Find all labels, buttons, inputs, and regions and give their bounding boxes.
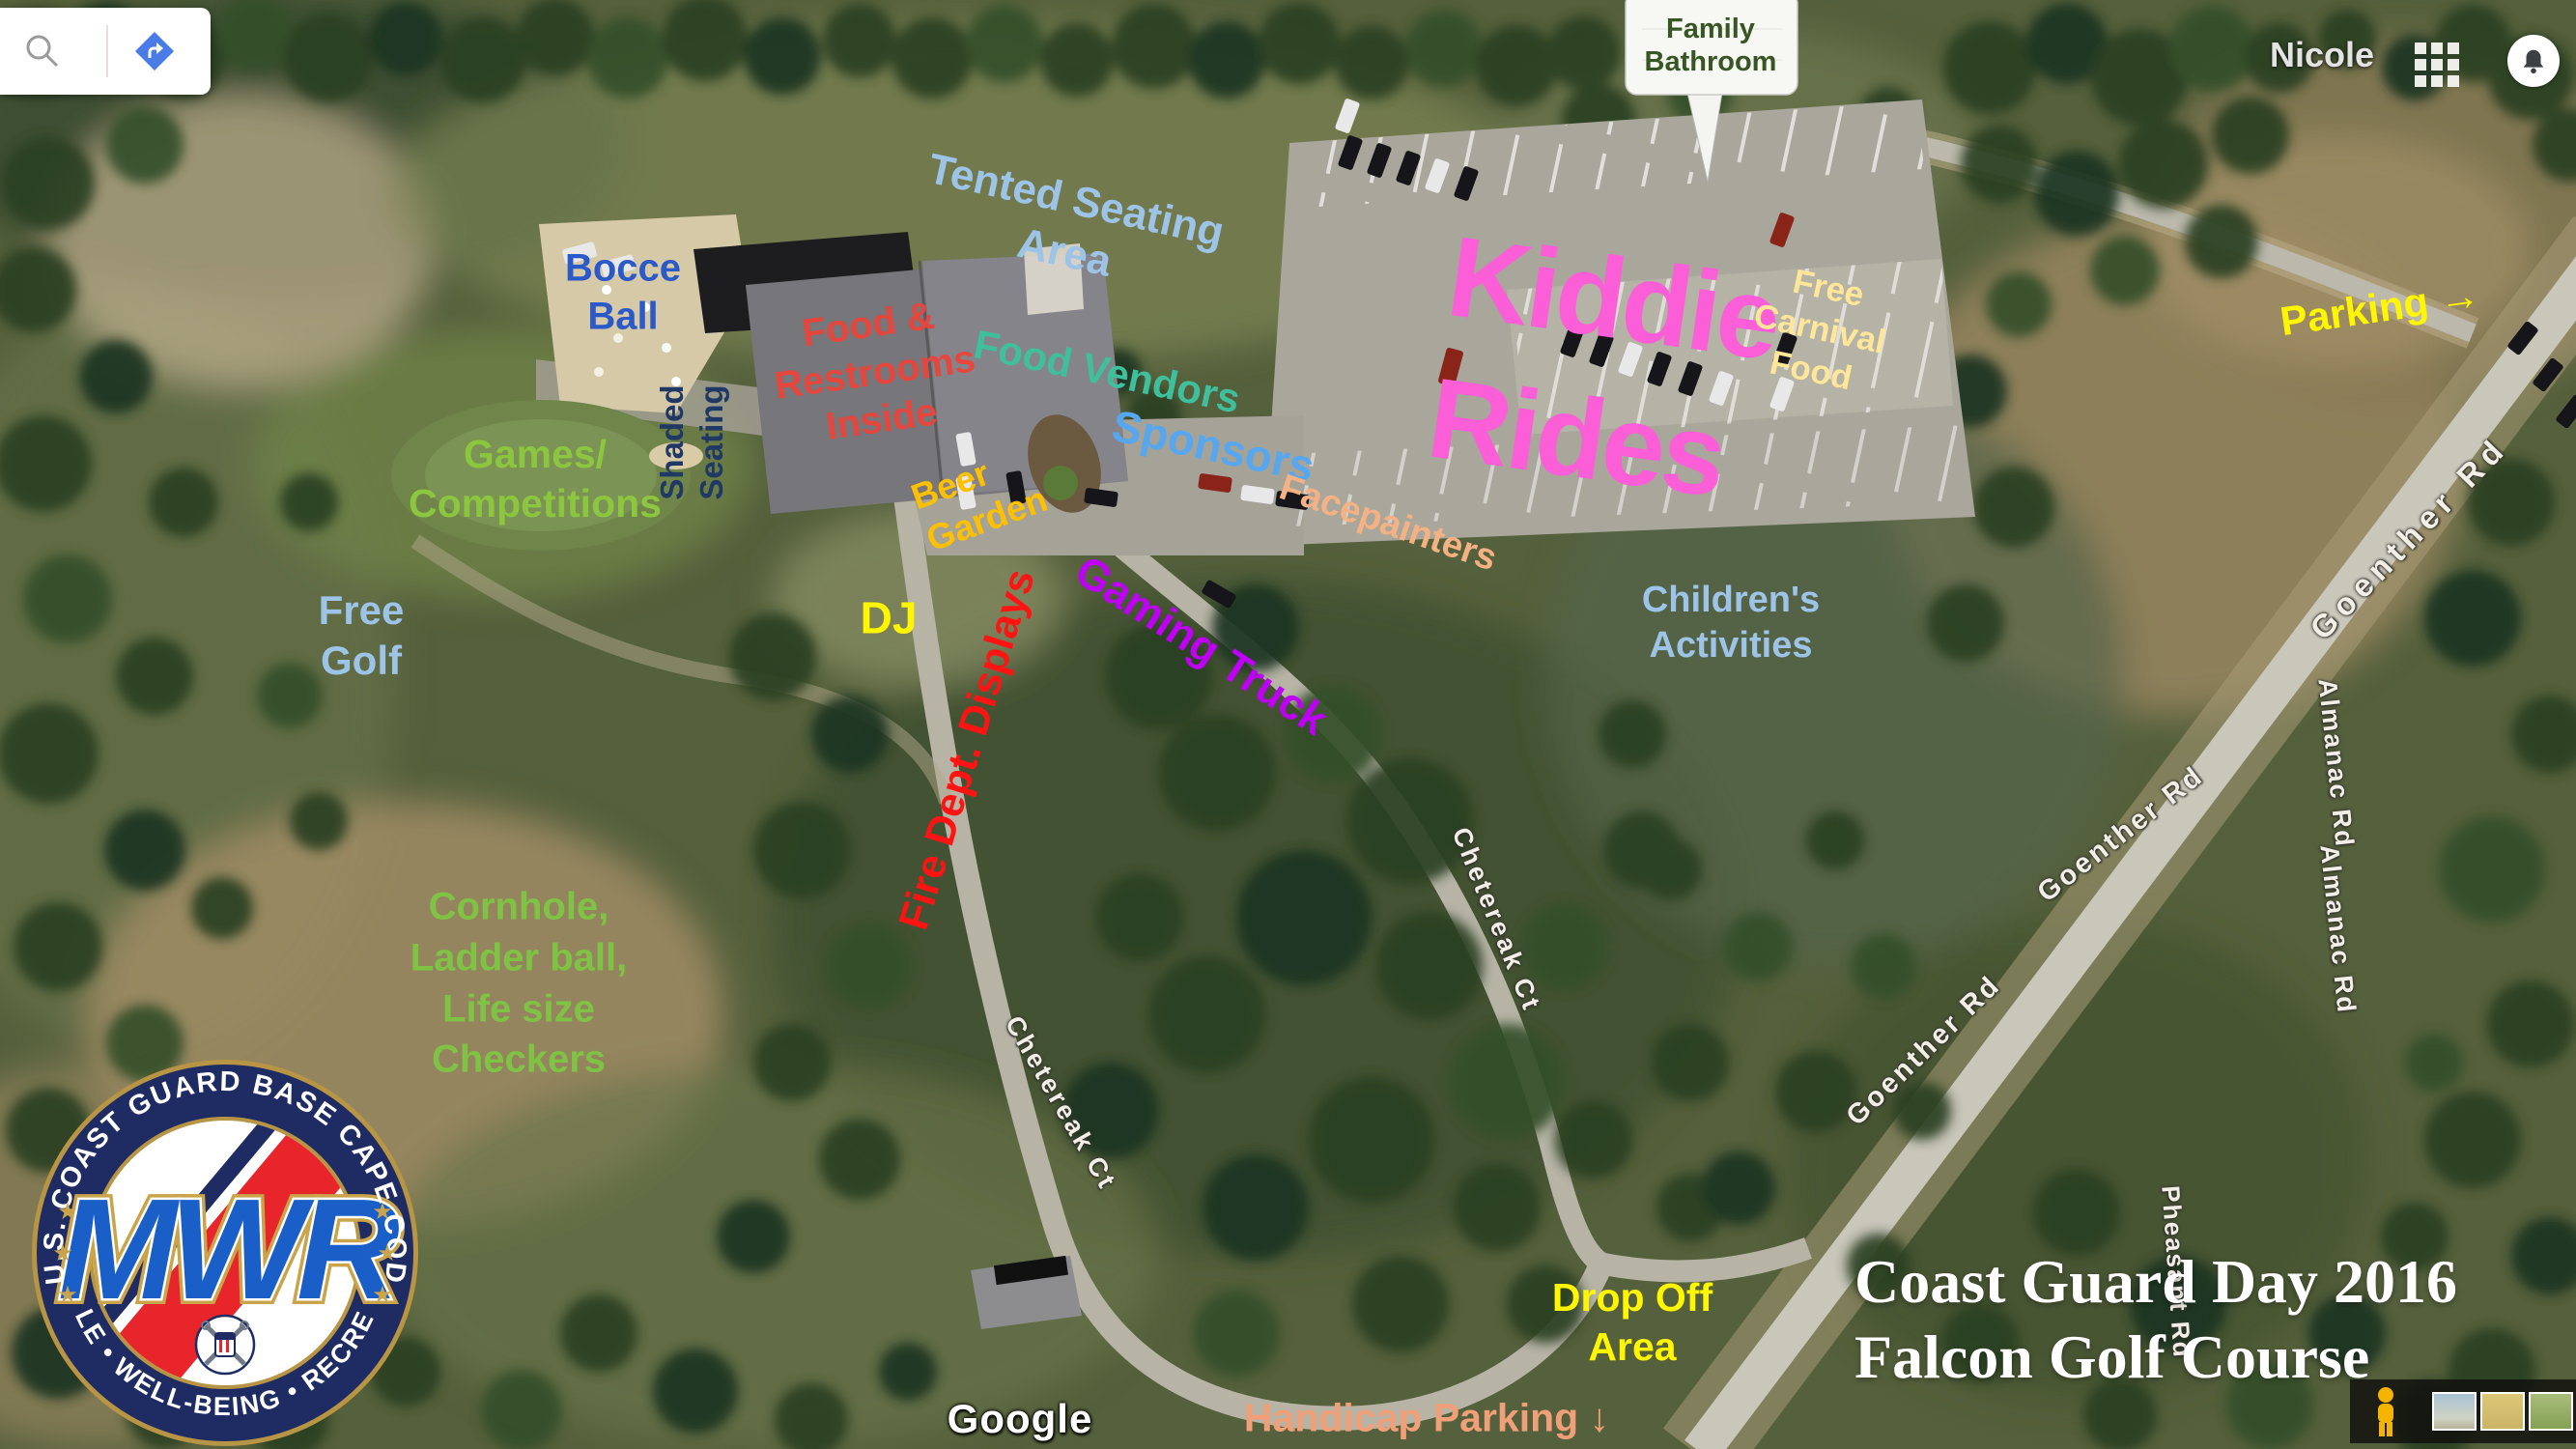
google-watermark: Google <box>948 1396 1093 1442</box>
label-dj: DJ <box>861 590 918 645</box>
uscg-seal <box>196 1316 254 1374</box>
event-title: Coast Guard Day 2016 Falcon Golf Course <box>1854 1244 2457 1395</box>
notifications-button[interactable] <box>2507 35 2560 87</box>
star-icon: ★ <box>57 1281 78 1308</box>
label-bocce-ball: Bocce Ball <box>565 244 681 340</box>
star-icon: ★ <box>57 1198 78 1225</box>
apps-grid-icon[interactable] <box>2415 43 2459 87</box>
label-shaded-seating: Shaded Seating <box>653 384 732 499</box>
label-handicap-parking: Handicap Parking ↓ <box>1244 1394 1609 1443</box>
google-maps-satellite-view[interactable]: Nicole Family Bathroom Tented Seating Ar… <box>0 0 2576 1449</box>
imagery-thumbnail-3[interactable] <box>2529 1392 2573 1431</box>
label-games-competitions: Games/ Competitions <box>409 430 662 528</box>
imagery-thumbnail-2[interactable] <box>2480 1392 2525 1431</box>
directions-icon[interactable] <box>133 30 176 72</box>
star-icon: ★ <box>377 1239 398 1266</box>
label-kiddie-rides: Kiddie Rides <box>1420 206 1787 534</box>
imagery-thumbnail-1[interactable] <box>2432 1392 2477 1431</box>
search-divider <box>106 25 108 77</box>
label-free-carnival-food: Free Carnival Food <box>1741 254 1898 405</box>
bell-icon <box>2519 46 2548 75</box>
label-cornhole-games: Cornhole, Ladder ball, Life size Checker… <box>410 881 628 1085</box>
pegman-icon[interactable] <box>2366 1385 2405 1439</box>
family-bathroom-label: Family Bathroom <box>1645 13 1777 78</box>
search-bar[interactable] <box>0 8 211 95</box>
label-childrens-activities: Children's Activities <box>1642 578 1820 668</box>
mwr-monogram: MWR <box>58 1170 399 1329</box>
label-free-golf: Free Golf <box>319 585 405 686</box>
star-icon: ★ <box>372 1198 393 1225</box>
search-icon[interactable] <box>23 32 62 71</box>
star-icon: ★ <box>52 1239 73 1266</box>
star-icon: ★ <box>372 1281 393 1308</box>
label-drop-off-area: Drop Off Area <box>1552 1273 1713 1372</box>
account-name[interactable]: Nicole <box>2270 35 2374 75</box>
label-food-restrooms-inside: Food & Restrooms Inside <box>765 288 985 458</box>
mwr-logo: MWR MWR U.S. COAST GUARD BASE CAPE COD M… <box>27 1055 423 1449</box>
